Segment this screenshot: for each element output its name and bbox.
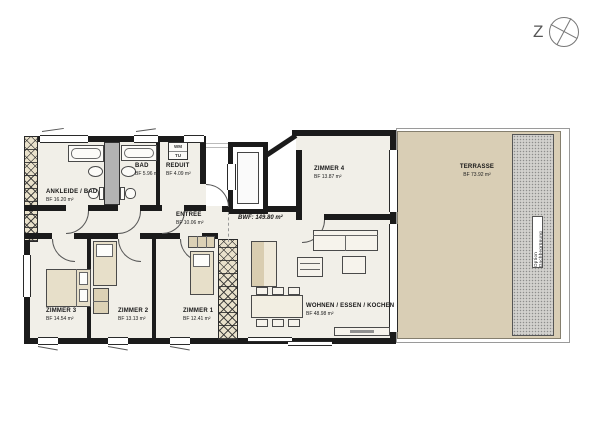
- window: [38, 337, 58, 345]
- wall: [292, 130, 394, 136]
- sink: [88, 166, 103, 177]
- window-flap: [108, 346, 128, 350]
- window: [108, 337, 128, 345]
- room-label-reduit: REDUIT BF 4.09 m²: [166, 163, 191, 177]
- dining-chair: [272, 287, 284, 295]
- floor-plan: Z Option Dachbegrünung TERRASSE BF 73.92…: [0, 0, 600, 444]
- room-label-ankleide: ANKLEIDE / BAD BF 16.20 m²: [46, 189, 97, 203]
- window: [23, 255, 31, 297]
- dining-table: [251, 295, 303, 318]
- coffee-table-line: [300, 263, 320, 264]
- kitchen-island-counter: [252, 242, 264, 286]
- room-label-wohnen: WOHNEN / ESSEN / KOCHEN BF 48.98 m²: [306, 303, 394, 317]
- sideboard-inlay: [350, 330, 374, 333]
- floor: [296, 132, 394, 220]
- room-label-bad: BAD BF 5.96 m²: [135, 163, 160, 177]
- room-label-zimmer3: ZIMMER 3 BF 14.54 m²: [46, 308, 76, 322]
- wall: [296, 150, 302, 220]
- pillow: [193, 254, 210, 267]
- window: [389, 150, 398, 212]
- room-label-terrasse: TERRASSE BF 73.92 m²: [430, 164, 524, 178]
- pillow: [79, 289, 88, 302]
- sliding-door: [288, 341, 332, 346]
- wall-hatched: [218, 239, 238, 340]
- bathtub: [68, 145, 104, 162]
- window-flap: [136, 128, 156, 132]
- green-roof-option-label: Option Dachbegrünung: [532, 216, 543, 268]
- room-label-entree: ENTRÉE BF 10.06 m²: [176, 212, 204, 226]
- window-flap: [42, 128, 64, 132]
- wall-diagonal: [265, 133, 298, 157]
- window-flap: [38, 346, 58, 350]
- dining-chair: [288, 319, 300, 327]
- sliding-door: [248, 337, 292, 342]
- bathtub: [121, 145, 157, 161]
- elevator-car: [237, 152, 259, 204]
- wall-hatched: [24, 136, 38, 242]
- toilet-cistern: [99, 187, 104, 200]
- dining-chair: [288, 287, 300, 295]
- pillow: [96, 244, 113, 257]
- wall: [24, 338, 396, 344]
- pillow: [79, 272, 88, 285]
- area-boundary-dashed: [228, 212, 229, 242]
- wardrobe-divider: [206, 236, 207, 248]
- dining-chair: [272, 319, 284, 327]
- bed-headboard-line: [76, 269, 77, 307]
- room-label-zimmer1: ZIMMER 1 BF 12.41 m²: [183, 308, 213, 322]
- washer-dryer-unit: WM TU: [168, 142, 188, 160]
- dining-chair: [256, 287, 268, 295]
- shaft: [104, 142, 120, 205]
- toilet-bowl: [125, 188, 136, 199]
- door-arc: [206, 184, 229, 207]
- wardrobe-divider: [197, 236, 198, 248]
- room-label-zimmer2: ZIMMER 2 BF 13.13 m²: [118, 308, 148, 322]
- stair-line: [206, 147, 228, 148]
- coffee-table: [297, 257, 323, 277]
- sink: [121, 166, 136, 177]
- dining-chair: [256, 319, 268, 327]
- wardrobe-divider: [93, 301, 109, 302]
- elevator-door: [227, 164, 236, 190]
- window: [170, 337, 190, 345]
- north-letter: Z: [533, 22, 543, 42]
- wall: [152, 239, 156, 338]
- window: [134, 135, 158, 143]
- bwf-label: BWF: 149.80 m²: [238, 215, 283, 221]
- sofa-divider: [345, 235, 346, 251]
- room-label-zimmer4: ZIMMER 4 BF 13.87 m²: [314, 166, 344, 180]
- coffee-table-line: [300, 269, 320, 270]
- wardrobe: [188, 236, 215, 248]
- window: [40, 135, 88, 143]
- side-table: [342, 256, 366, 274]
- stair-line: [206, 143, 228, 144]
- window-flap: [170, 346, 190, 350]
